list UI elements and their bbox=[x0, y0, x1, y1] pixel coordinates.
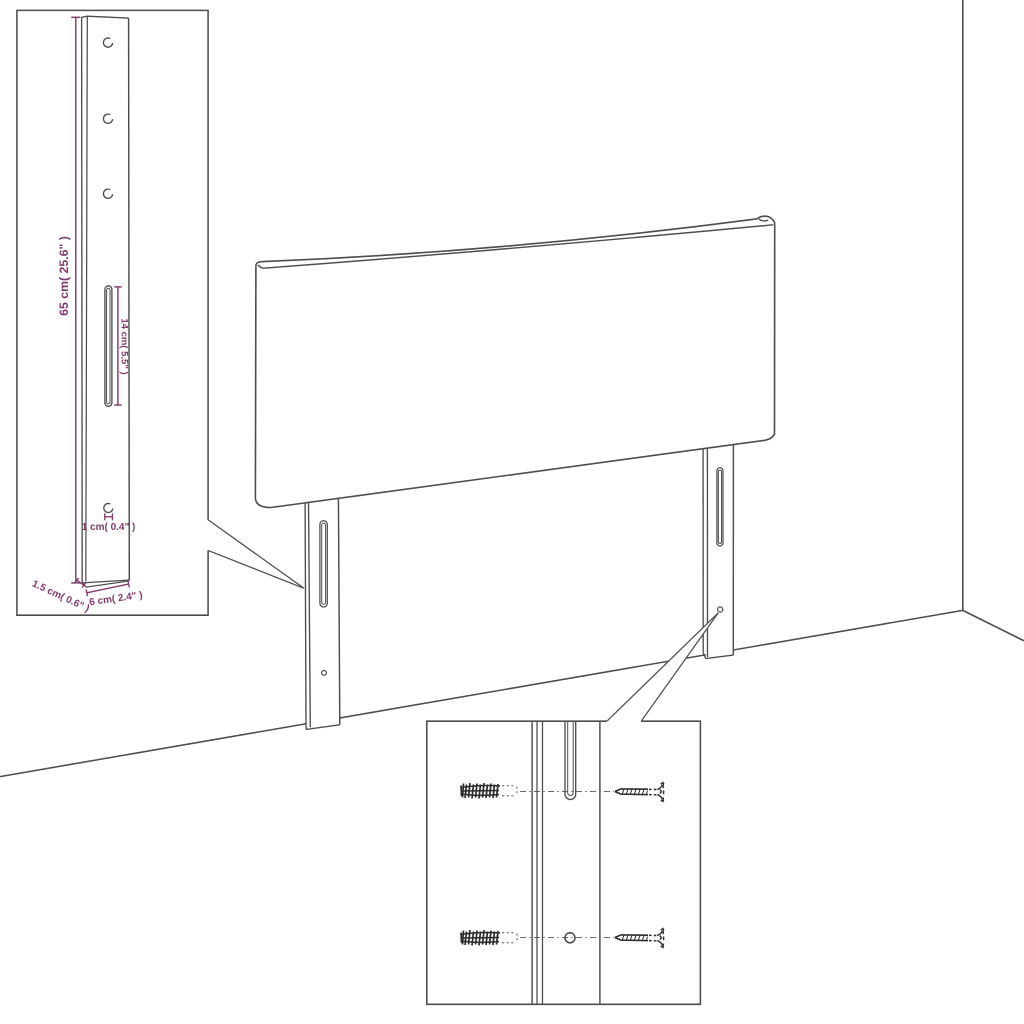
svg-text:65 cm( 25.6" ): 65 cm( 25.6" ) bbox=[57, 236, 71, 316]
svg-text:1 cm( 0.4" ): 1 cm( 0.4" ) bbox=[82, 522, 136, 533]
svg-text:14 cm( 5.5" ): 14 cm( 5.5" ) bbox=[119, 318, 130, 374]
